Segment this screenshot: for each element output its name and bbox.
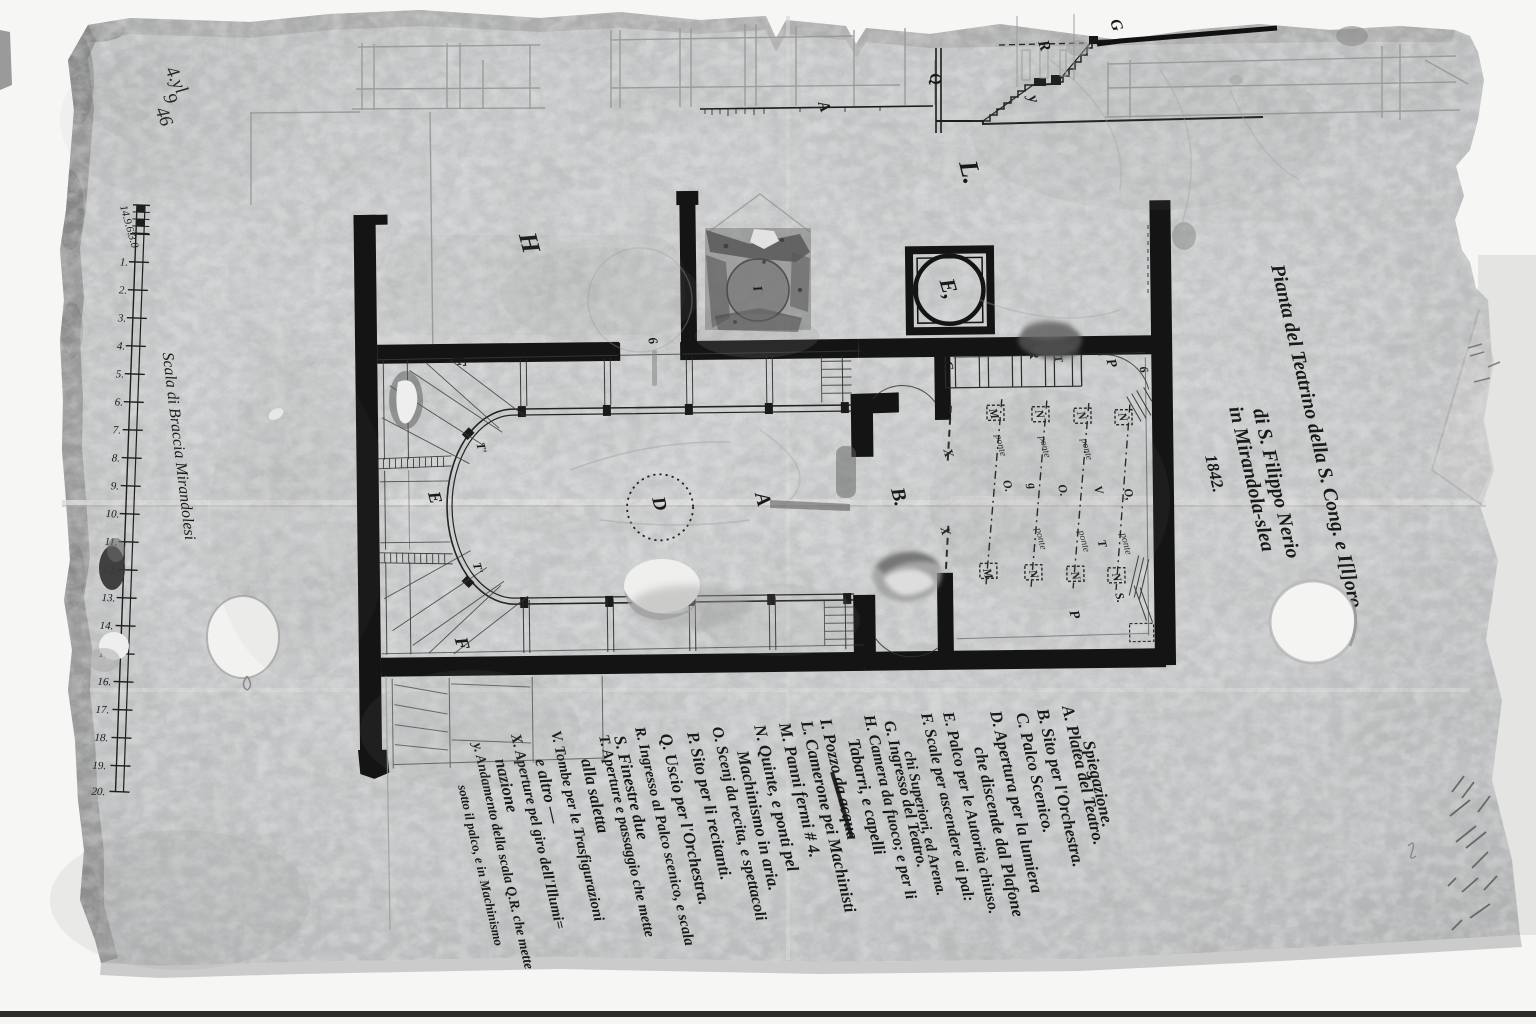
svg-text:6.: 6. — [115, 396, 124, 408]
svg-text:20.: 20. — [91, 786, 105, 798]
svg-text:1.: 1. — [120, 256, 129, 268]
svg-text:19.: 19. — [92, 760, 106, 772]
svg-text:18.: 18. — [94, 732, 108, 744]
svg-text:14.: 14. — [99, 620, 113, 632]
svg-text:9.: 9. — [110, 480, 119, 492]
svg-text:16.: 16. — [97, 676, 111, 688]
svg-text:3.: 3. — [117, 312, 127, 324]
svg-text:13.: 13. — [101, 592, 115, 604]
svg-text:4.: 4. — [117, 340, 126, 352]
svg-text:2.: 2. — [119, 284, 128, 296]
svg-text:17.: 17. — [95, 704, 109, 716]
svg-text:7.: 7. — [113, 424, 122, 436]
svg-text:5.: 5. — [116, 368, 125, 380]
svg-text:10.: 10. — [105, 508, 119, 520]
svg-text:8.: 8. — [111, 452, 120, 464]
